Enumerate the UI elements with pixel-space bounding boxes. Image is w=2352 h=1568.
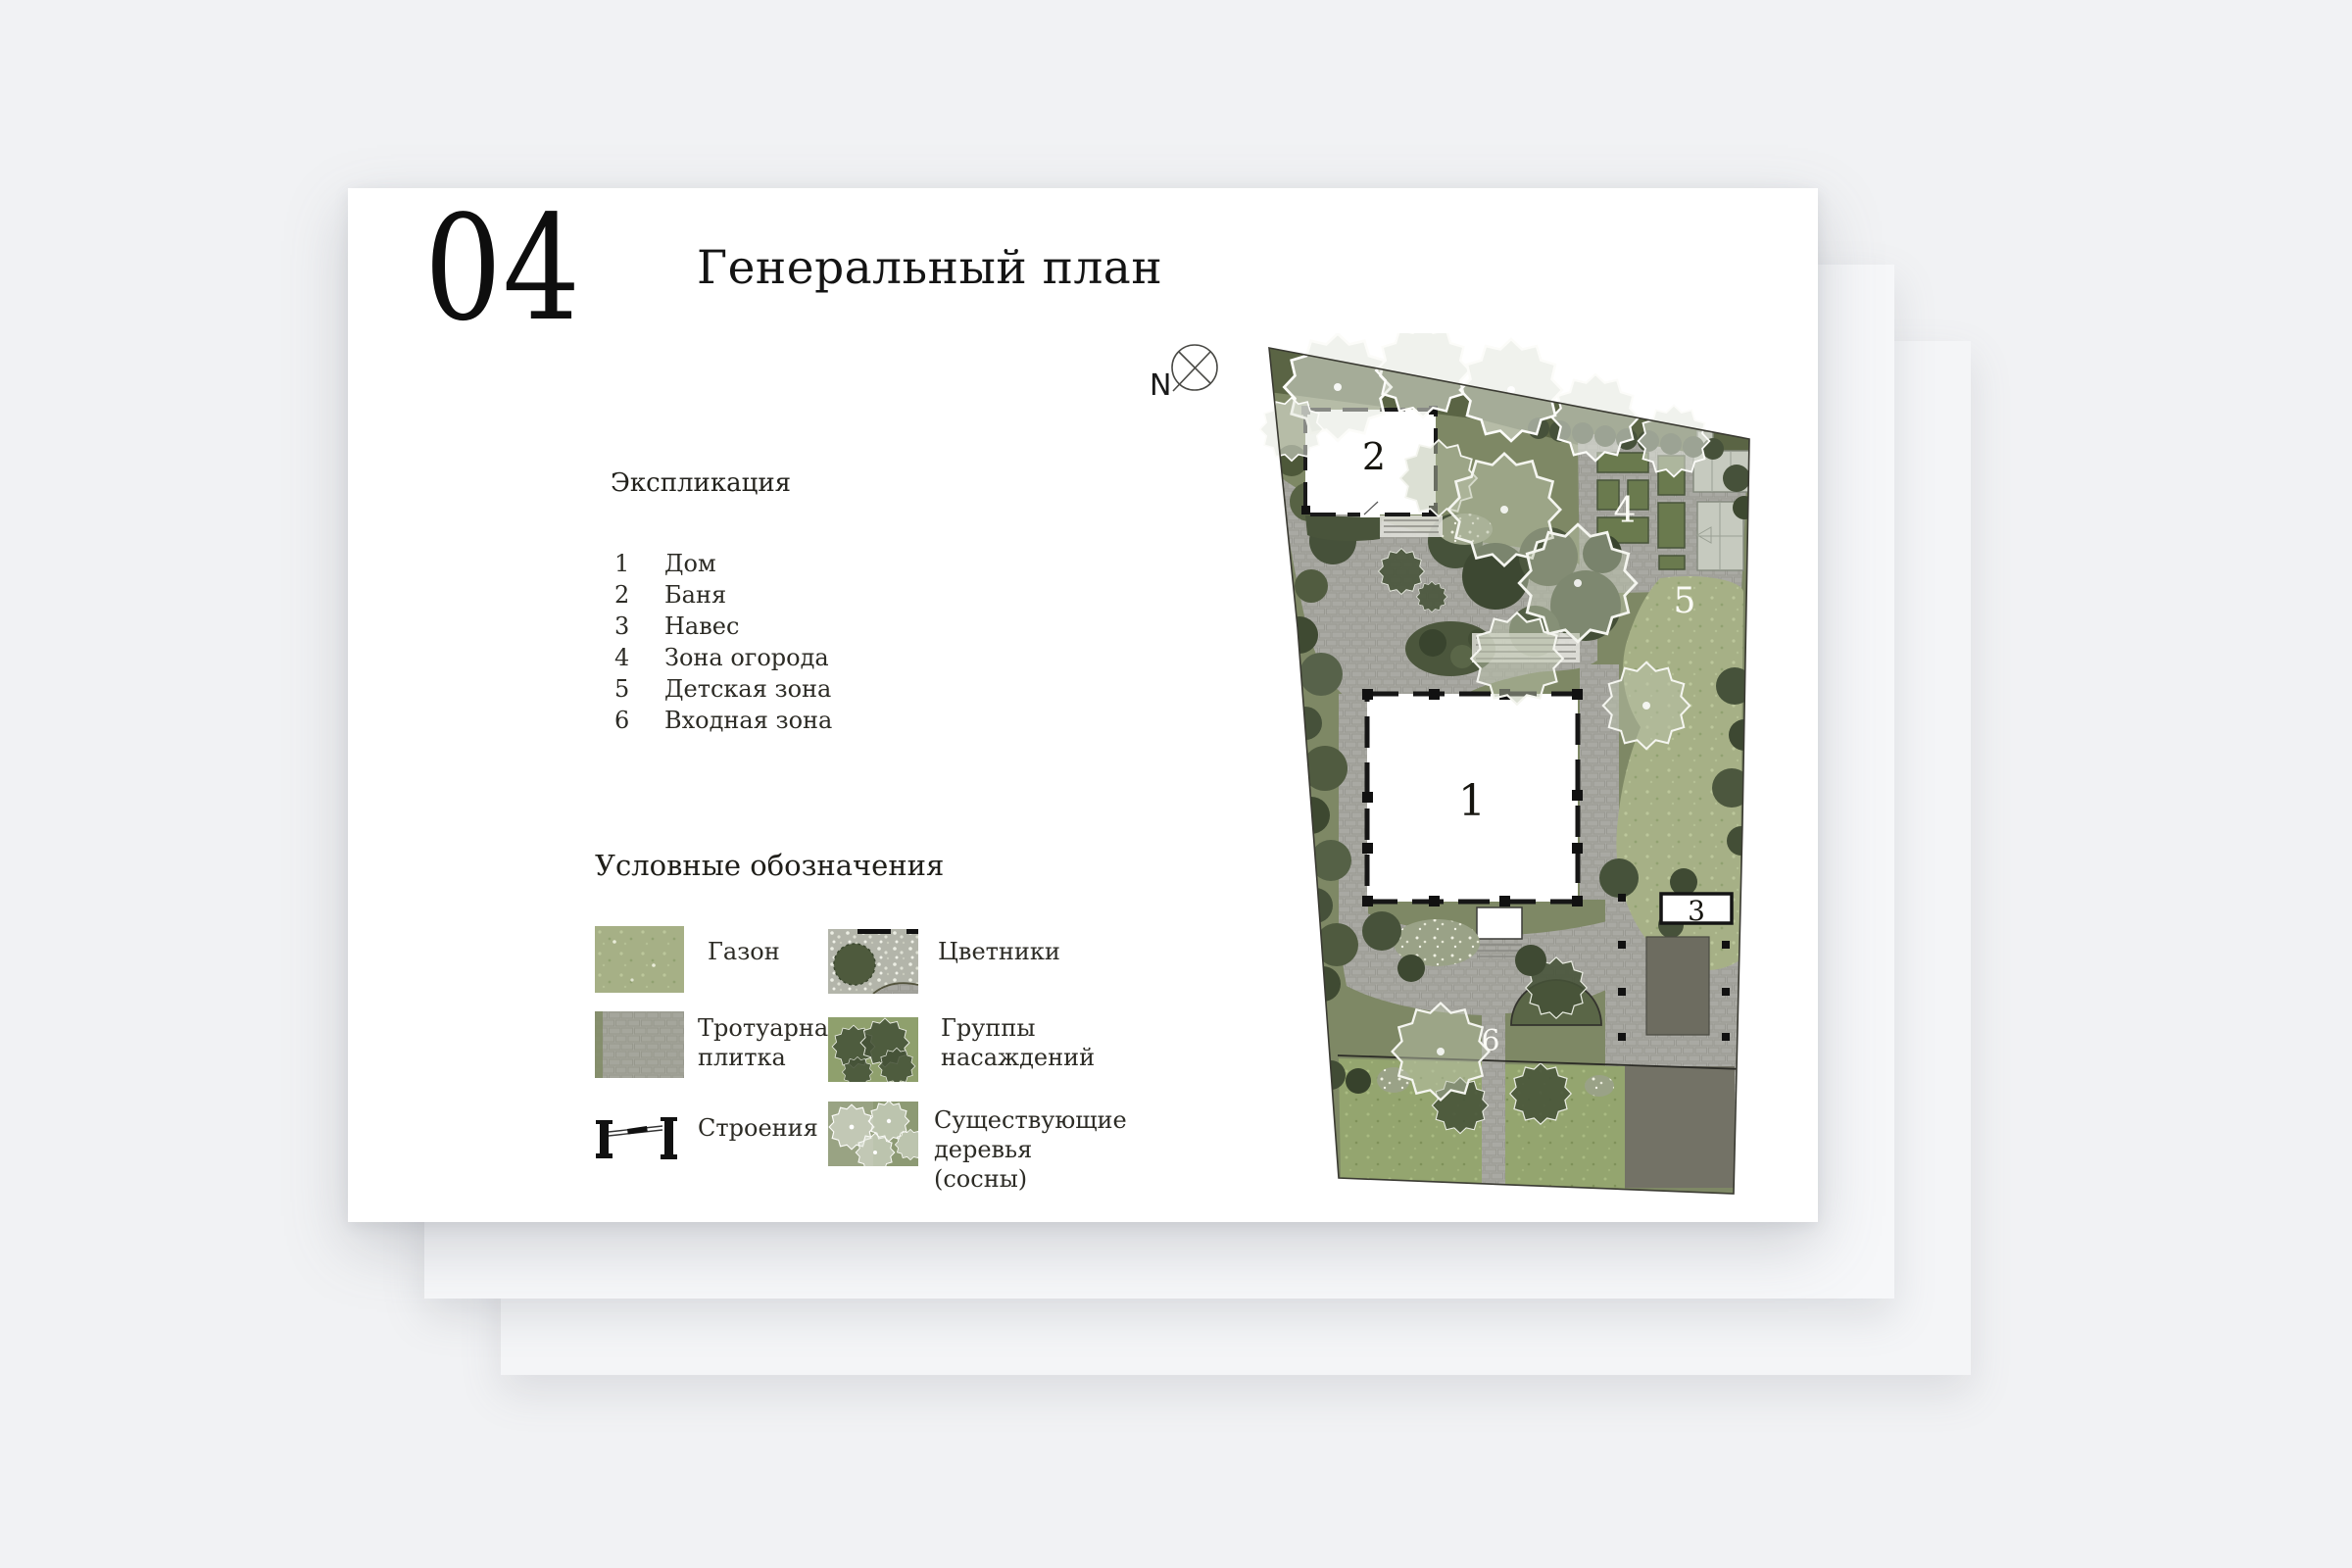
presentation-sheet: 04 Генеральный план Экспликация 1 Дом 2 … — [348, 188, 1818, 1222]
legend-heading: Условные обозначения — [595, 849, 944, 882]
explication-item: 5 Детская зона — [614, 673, 832, 705]
explication-item: 3 Навес — [614, 611, 832, 642]
legend-item-paving-label: Тротуарная плитка — [698, 1013, 835, 1072]
lawn-swatch-icon — [595, 926, 684, 993]
north-compass-icon — [1169, 343, 1224, 398]
site-plan-drawing: 1 2 3 4 5 6 — [1254, 333, 1764, 1205]
legend-item-flowerbeds-label: Цветники — [938, 937, 1060, 966]
explication-item-label: Зона огорода — [664, 642, 829, 673]
explication-item: 4 Зона огорода — [614, 642, 832, 673]
explication-item-label: Детская зона — [664, 673, 831, 705]
explication-item-number: 5 — [614, 673, 664, 705]
plantings-swatch-icon — [828, 1017, 918, 1082]
explication-item-number: 4 — [614, 642, 664, 673]
marker-kids: 5 — [1674, 581, 1696, 621]
explication-heading: Экспликация — [611, 468, 791, 498]
marker-bathhouse: 2 — [1362, 435, 1386, 478]
explication-item-number: 2 — [614, 579, 664, 611]
explication-item-label: Входная зона — [664, 705, 832, 736]
explication-item: 1 Дом — [614, 548, 832, 579]
marker-garden: 4 — [1614, 491, 1637, 531]
explication-list: 1 Дом 2 Баня 3 Навес 4 Зона огорода 5 Де… — [614, 548, 832, 736]
marker-entrance: 6 — [1481, 1024, 1499, 1058]
legend-item-plantings-label: Группы насаждений — [941, 1013, 1078, 1072]
explication-item-number: 6 — [614, 705, 664, 736]
parking-area — [1625, 1066, 1735, 1188]
explication-item: 2 Баня — [614, 579, 832, 611]
existing-pines-swatch-icon — [828, 1102, 918, 1166]
page-number: 04 — [424, 196, 581, 341]
structures-symbol-icon — [596, 1113, 682, 1164]
legend-item-structures-label: Строения — [698, 1113, 818, 1143]
marker-canopy: 3 — [1688, 895, 1705, 927]
flowerbeds-swatch-icon — [828, 929, 918, 994]
explication-item-number: 3 — [614, 611, 664, 642]
planting-bed — [1305, 515, 1382, 541]
explication-item-label: Навес — [664, 611, 739, 642]
explication-item-number: 1 — [614, 548, 664, 579]
explication-item: 6 Входная зона — [614, 705, 832, 736]
house-porch — [1477, 907, 1522, 939]
legend-item-lawn-label: Газон — [708, 937, 780, 966]
page-title: Генеральный план — [697, 241, 1162, 296]
parking-area — [1646, 937, 1709, 1035]
explication-item-label: Баня — [664, 579, 726, 611]
paving-swatch-icon — [595, 1011, 684, 1078]
marker-house: 1 — [1458, 776, 1486, 826]
explication-item-label: Дом — [664, 548, 716, 579]
legend-item-existing-pines-label: Существующие деревья (сосны) — [934, 1105, 1115, 1194]
